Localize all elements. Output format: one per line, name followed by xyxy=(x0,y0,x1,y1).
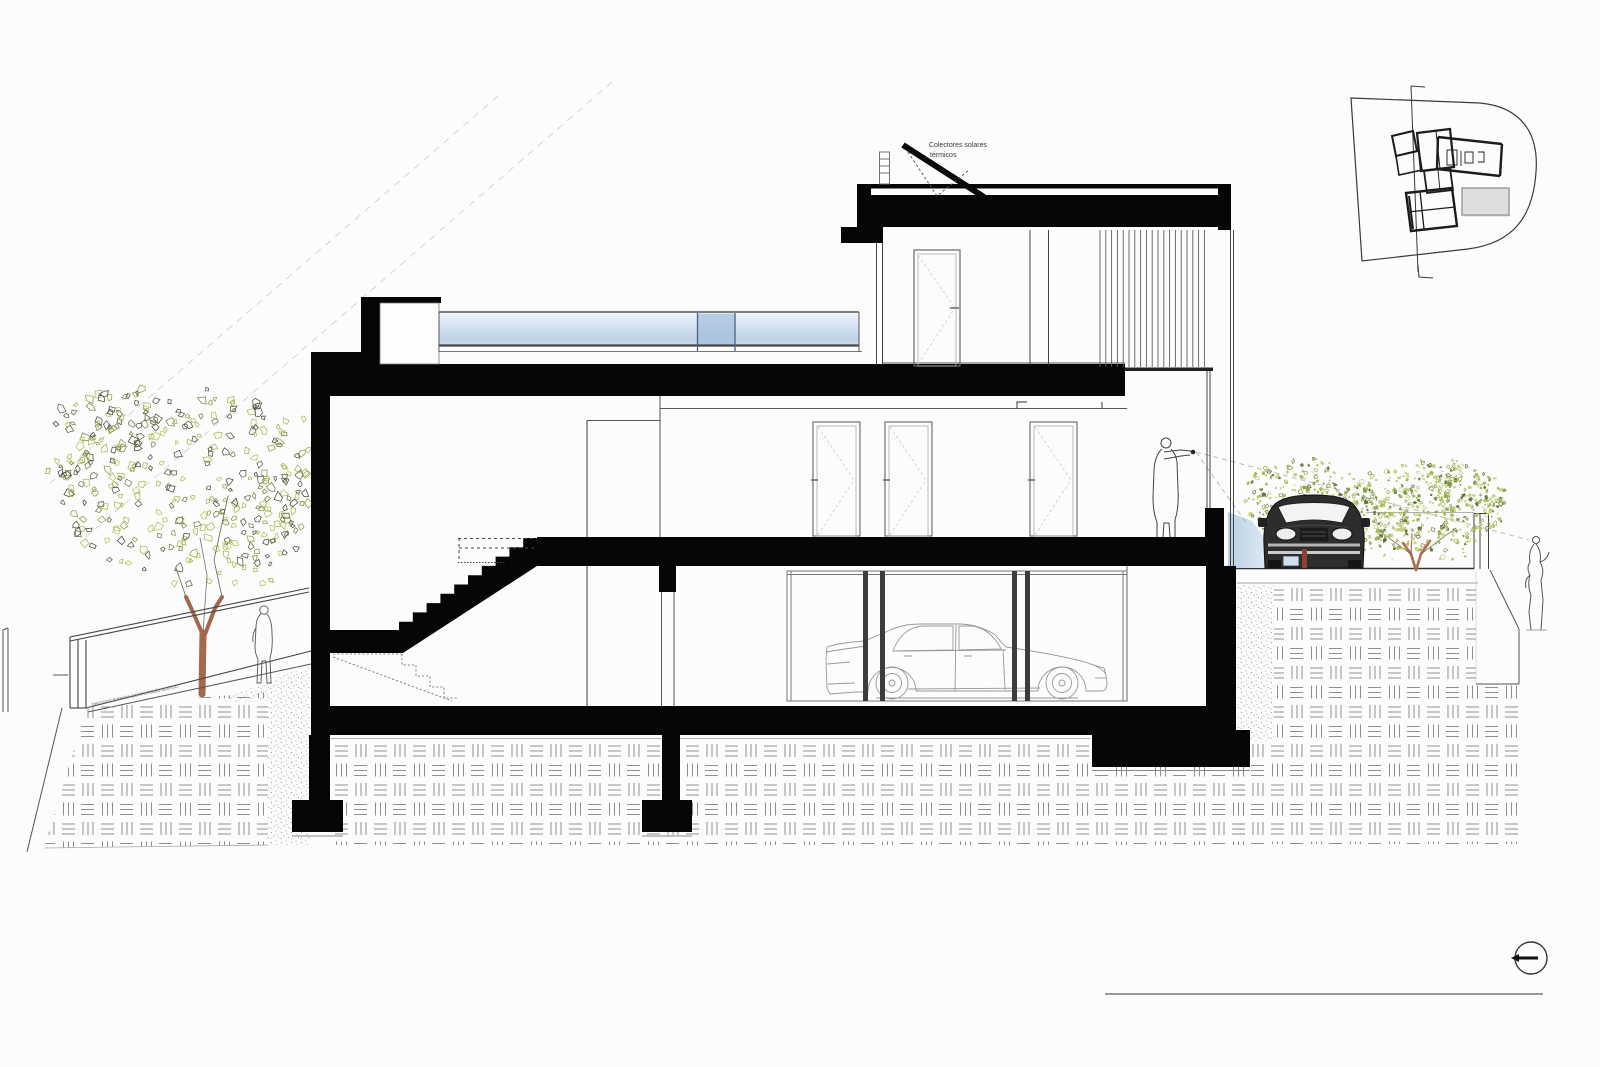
svg-text:térmicos: térmicos xyxy=(930,152,957,159)
svg-text:Colectores solares: Colectores solares xyxy=(929,142,987,149)
